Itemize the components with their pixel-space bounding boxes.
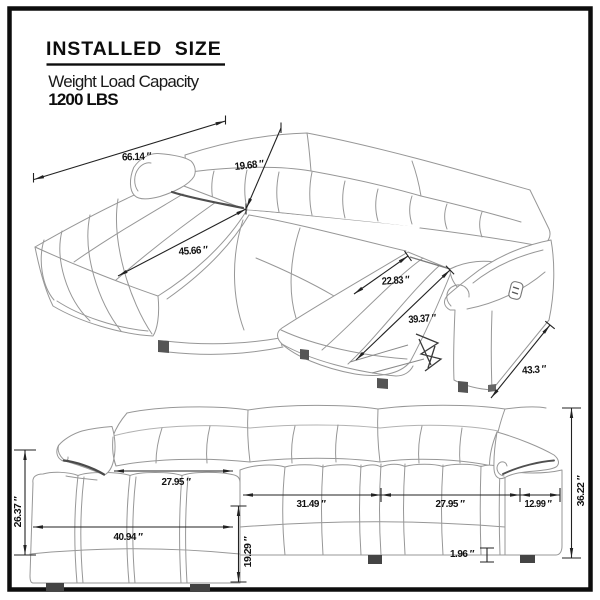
- svg-text:26.37 ″: 26.37 ″: [12, 496, 24, 527]
- svg-text:66.14 ″: 66.14 ″: [122, 150, 152, 163]
- svg-text:27.95 ″: 27.95 ″: [436, 498, 465, 510]
- svg-text:40.94 ″: 40.94 ″: [114, 531, 143, 543]
- svg-text:45.66 ″: 45.66 ″: [178, 244, 208, 258]
- svg-text:27.95 ″: 27.95 ″: [162, 476, 191, 488]
- svg-text:Weight Load Capacity: Weight Load Capacity: [48, 72, 199, 91]
- svg-text:INSTALLED SIZE: INSTALLED SIZE: [46, 38, 222, 60]
- svg-text:19.29 ″: 19.29 ″: [242, 536, 254, 567]
- svg-text:1.96 ″: 1.96 ″: [450, 548, 474, 560]
- svg-text:22.83 ″: 22.83 ″: [381, 274, 410, 288]
- svg-text:12.99 ″: 12.99 ″: [525, 498, 552, 510]
- svg-text:39.37 ″: 39.37 ″: [408, 312, 437, 326]
- svg-text:36.22 ″: 36.22 ″: [575, 475, 587, 506]
- svg-text:31.49 ″: 31.49 ″: [297, 498, 326, 510]
- svg-text:1200 LBS: 1200 LBS: [48, 90, 118, 109]
- svg-text:43.3 ″: 43.3 ″: [522, 363, 547, 377]
